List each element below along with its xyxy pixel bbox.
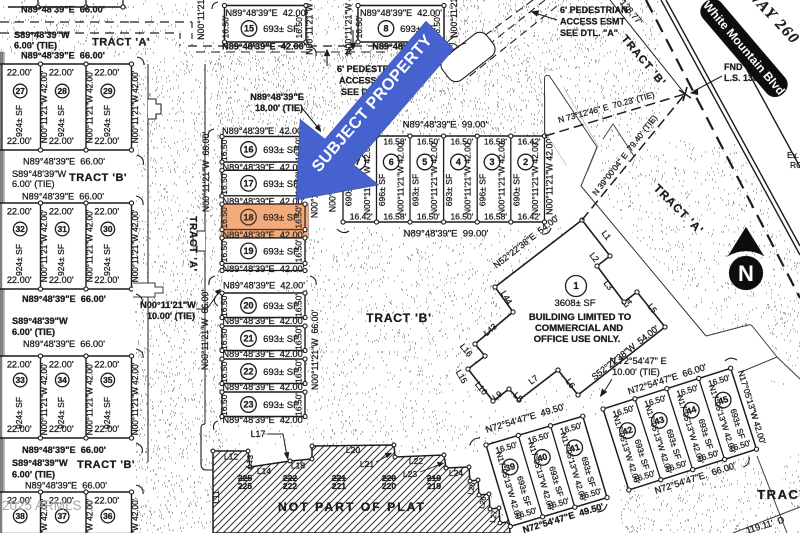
- svg-text:L23: L23: [403, 469, 417, 479]
- svg-text:22: 22: [243, 367, 253, 377]
- svg-text:18.00' (TIE): 18.00' (TIE): [255, 103, 303, 113]
- svg-text:32: 32: [15, 224, 25, 234]
- svg-text:N00°11'21"W 42.00': N00°11'21"W 42.00': [86, 362, 95, 435]
- svg-text:27: 27: [15, 86, 25, 96]
- svg-text:22.00': 22.00': [94, 496, 119, 506]
- svg-text:16.50': 16.50': [294, 15, 304, 38]
- svg-text:31: 31: [57, 224, 67, 234]
- svg-text:L11: L11: [211, 490, 221, 504]
- svg-text:22.00': 22.00': [49, 207, 74, 217]
- svg-text:22.00': 22.00': [49, 360, 74, 370]
- svg-text:N89°48'39"E 99.00': N89°48'39"E 99.00': [403, 120, 488, 131]
- svg-text:N89°48'39"E 66.00': N89°48'39"E 66.00': [22, 192, 104, 202]
- svg-text:16.50': 16.50': [294, 294, 304, 317]
- svg-text:924± SF: 924± SF: [102, 105, 112, 137]
- svg-text:N89°48'39"E 99.00': N89°48'39"E 99.00': [404, 229, 489, 240]
- svg-text:924± SF: 924± SF: [14, 244, 24, 276]
- svg-text:N00°11'21"W 42.00': N00°11'21"W 42.00': [40, 209, 49, 282]
- svg-text:N89°48'39"E 66.00': N89°48'39"E 66.00': [23, 339, 105, 349]
- svg-text:SEE DTL. "A": SEE DTL. "A": [560, 28, 618, 38]
- svg-text:N89°48'39"E 42.00': N89°48'39"E 42.00': [223, 264, 305, 274]
- svg-text:N00°11'21"W 66.00': N00°11'21"W 66.00': [310, 310, 320, 391]
- svg-text:22.00': 22.00': [7, 68, 32, 78]
- svg-text:20: 20: [243, 301, 253, 311]
- svg-text:S89°48'39"W: S89°48'39"W: [12, 458, 68, 468]
- svg-text:S89°48'39"W: S89°48'39"W: [12, 316, 68, 326]
- svg-text:N00°11'21"W 42.00': N00°11'21"W 42.00': [86, 70, 95, 143]
- svg-text:TRACT 'B': TRACT 'B': [77, 459, 135, 471]
- svg-text:N00°11'21"W 42.00': N00°11'21"W 42.00': [86, 209, 95, 282]
- svg-text:N00°11'21"W 42.00': N00°11'21"W 42.00': [131, 70, 140, 143]
- svg-text:N00°11'21"W: N00°11'21"W: [196, 0, 206, 40]
- svg-text:N00°11'21"W 42.00': N00°11'21"W 42.00': [131, 209, 140, 282]
- svg-text:16.50': 16.50': [219, 171, 229, 194]
- svg-text:924± SF: 924± SF: [102, 244, 112, 276]
- svg-text:N89°48'39"E 66.00': N89°48'39"E 66.00': [22, 294, 106, 304]
- svg-text:L18: L18: [291, 461, 305, 471]
- svg-text:16.50': 16.50': [354, 15, 364, 38]
- svg-text:RO: RO: [790, 160, 800, 170]
- svg-text:BUILDING LIMITED TO: BUILDING LIMITED TO: [529, 312, 631, 323]
- svg-text:16.50': 16.50': [219, 393, 229, 416]
- svg-text:16.50': 16.50': [221, 15, 231, 38]
- svg-text:222: 222: [283, 481, 297, 491]
- svg-text:690± SF: 690± SF: [511, 174, 521, 206]
- svg-text:16.50': 16.50': [219, 138, 229, 161]
- svg-text:N89°48'39"E 42.00': N89°48'39"E 42.00': [222, 126, 304, 136]
- svg-text:L21: L21: [360, 459, 374, 469]
- svg-text:N00°11'21"W: N00°11'21"W: [449, 0, 459, 38]
- svg-text:16.50': 16.50': [219, 239, 229, 262]
- svg-text:924± SF: 924± SF: [14, 105, 24, 137]
- svg-text:4: 4: [456, 157, 461, 167]
- svg-text:6.00' (TIE): 6.00' (TIE): [12, 470, 55, 480]
- svg-text:29: 29: [103, 86, 113, 96]
- svg-text:Ex.: Ex.: [787, 150, 799, 160]
- svg-text:N00°11'21"W 42.00': N00°11'21"W 42.00': [496, 141, 506, 215]
- svg-text:L20: L20: [346, 445, 360, 455]
- svg-text:10.00' (TIE): 10.00' (TIE): [147, 311, 195, 321]
- svg-text:TRACT 'A': TRACT 'A': [187, 216, 198, 272]
- svg-text:8: 8: [383, 24, 388, 34]
- svg-text:21: 21: [243, 334, 253, 344]
- svg-text:16.50': 16.50': [294, 239, 304, 262]
- svg-text:N00°11'21"W 42.00': N00°11'21"W 42.00': [545, 137, 555, 215]
- svg-text:TRACT 'B': TRACT 'B': [69, 172, 127, 184]
- svg-text:6.00' (TIE): 6.00' (TIE): [12, 327, 55, 337]
- svg-text:S89°48'39"W: S89°48'39"W: [14, 30, 70, 40]
- svg-text:L17: L17: [251, 429, 266, 439]
- svg-text:2: 2: [523, 157, 528, 167]
- svg-text:N00°11'21"W 42.00': N00°11'21"W 42.00': [463, 141, 473, 215]
- svg-text:693± SF: 693± SF: [411, 174, 421, 206]
- svg-text:L14: L14: [257, 466, 271, 476]
- svg-text:16: 16: [243, 145, 253, 155]
- svg-text:35: 35: [103, 375, 113, 385]
- svg-text:2025 ARMLS: 2025 ARMLS: [2, 498, 82, 513]
- svg-text:6: 6: [389, 157, 394, 167]
- svg-text:6.00' (TIE): 6.00' (TIE): [12, 179, 55, 189]
- svg-text:TRACT 'B': TRACT 'B': [366, 311, 432, 325]
- svg-text:OFFICE USE ONLY.: OFFICE USE ONLY.: [534, 334, 621, 345]
- svg-text:33: 33: [15, 375, 25, 385]
- svg-text:924± SF: 924± SF: [102, 397, 112, 429]
- svg-text:19: 19: [243, 246, 253, 256]
- svg-text:N00°11'21"W 42.00': N00°11'21"W 42.00': [396, 141, 406, 215]
- svg-text:N00°11'21"W 66.00': N00°11'21"W 66.00': [201, 132, 211, 213]
- svg-text:36: 36: [103, 511, 113, 521]
- svg-text:S89°48'39"W: S89°48'39"W: [12, 169, 66, 179]
- svg-text:28: 28: [57, 86, 67, 96]
- svg-text:TRACT: TRACT: [757, 487, 800, 502]
- svg-text:N89°48'39"E: N89°48'39"E: [250, 92, 304, 102]
- svg-text:924± SF: 924± SF: [14, 397, 24, 429]
- svg-text:22.00': 22.00': [94, 360, 119, 370]
- svg-text:N89°48'39"E 42.00': N89°48'39"E 42.00': [223, 415, 305, 425]
- svg-text:220: 220: [382, 481, 396, 491]
- svg-text:N00°11'21"W 42.00': N00°11'21"W 42.00': [40, 362, 49, 435]
- svg-text:N00°11'21"W 42.00': N00°11'21"W 42.00': [305, 0, 315, 55]
- svg-text:225: 225: [238, 481, 252, 491]
- svg-text:N89°48'39"E 42.00': N89°48'39"E 42.00': [360, 8, 442, 18]
- svg-text:696± SF: 696± SF: [478, 174, 488, 206]
- svg-text:N00°11'21"W 42.00': N00°11'21"W 42.00': [131, 362, 140, 435]
- svg-text:N89°48'39"E 42.00': N89°48'39"E 42.00': [223, 281, 305, 291]
- svg-text:N89°48'39"E 66.00': N89°48'39"E 66.00': [23, 157, 105, 167]
- svg-text:924± SF: 924± SF: [56, 105, 66, 137]
- svg-text:16.50': 16.50': [294, 205, 304, 228]
- svg-text:N89°48'39"E 42.00': N89°48'39"E 42.00': [222, 42, 306, 52]
- svg-text:N00°11'21"W: N00°11'21"W: [140, 300, 196, 310]
- svg-text:N00°11'21"W 42.00': N00°11'21"W 42.00': [86, 498, 95, 533]
- svg-text:N 72°54'47" E: N 72°54'47" E: [609, 356, 666, 366]
- svg-text:221: 221: [332, 481, 346, 491]
- svg-text:6.00' (TIE): 6.00' (TIE): [14, 41, 57, 51]
- svg-text:N89°48'39"E 66.00': N89°48'39"E 66.00': [21, 51, 105, 61]
- svg-text:ACCESS ESMT: ACCESS ESMT: [560, 17, 626, 27]
- svg-text:1: 1: [573, 281, 579, 292]
- svg-text:N89°48'39"E 66.00': N89°48'39"E 66.00': [22, 445, 106, 455]
- svg-text:3608± SF: 3608± SF: [554, 298, 595, 309]
- svg-text:TRACT 'A': TRACT 'A': [92, 37, 150, 49]
- svg-text:3: 3: [489, 157, 494, 167]
- svg-text:N89°48'39"E 42.00': N89°48'39"E 42.00': [223, 382, 305, 392]
- svg-text:N00°11'21"W 42.00': N00°11'21"W 42.00': [429, 141, 439, 215]
- svg-text:16.50': 16.50': [294, 393, 304, 416]
- svg-text:NOT PART OF PLAT: NOT PART OF PLAT: [278, 500, 426, 514]
- svg-text:15: 15: [244, 24, 254, 34]
- svg-text:22.00': 22.00': [49, 68, 74, 78]
- svg-text:16.50': 16.50': [219, 327, 229, 350]
- svg-text:22.00': 22.00': [94, 207, 119, 217]
- svg-text:693± SF: 693± SF: [444, 174, 454, 206]
- svg-text:N89°48'39"E 42.00': N89°48'39"E 42.00': [223, 316, 305, 326]
- svg-text:18: 18: [243, 212, 253, 222]
- svg-text:16.50': 16.50': [294, 360, 304, 383]
- svg-text:10.00' (TIE): 10.00' (TIE): [612, 367, 660, 377]
- svg-text:16.50': 16.50': [219, 294, 229, 317]
- svg-text:16.50': 16.50': [294, 327, 304, 350]
- svg-text:N00°11'21"W 42.00': N00°11'21"W 42.00': [530, 141, 540, 215]
- svg-text:30: 30: [103, 224, 113, 234]
- svg-text:COMMERCIAL AND: COMMERCIAL AND: [535, 323, 623, 334]
- svg-text:N00°11'21"W 42.00': N00°11'21"W 42.00': [40, 70, 49, 143]
- svg-text:N: N: [738, 261, 754, 286]
- svg-text:219: 219: [427, 481, 441, 491]
- svg-text:N89°48'39"E 42.00': N89°48'39"E 42.00': [223, 349, 305, 359]
- svg-text:L24: L24: [449, 468, 463, 478]
- svg-text:L22: L22: [409, 456, 423, 466]
- svg-text:924± SF: 924± SF: [56, 244, 66, 276]
- svg-text:N89°48'39"E 66.00': N89°48'39"E 66.00': [25, 481, 107, 491]
- svg-text:696± SF: 696± SF: [377, 174, 387, 206]
- svg-text:L12: L12: [224, 452, 238, 462]
- svg-text:N89°48'39"E 66.00': N89°48'39"E 66.00': [21, 5, 105, 15]
- svg-text:5: 5: [422, 157, 427, 167]
- svg-text:34: 34: [57, 375, 67, 385]
- svg-text:16.50': 16.50': [219, 360, 229, 383]
- svg-text:16.50': 16.50': [219, 205, 229, 228]
- svg-text:N00°11'21"W 66.00': N00°11'21"W 66.00': [200, 290, 210, 371]
- svg-text:17: 17: [243, 179, 253, 189]
- svg-text:22.00': 22.00': [94, 68, 119, 78]
- svg-text:23: 23: [243, 400, 253, 410]
- svg-text:22.00': 22.00': [7, 207, 32, 217]
- svg-text:924± SF: 924± SF: [56, 397, 66, 429]
- svg-text:22.00': 22.00': [7, 360, 32, 370]
- svg-text:N00°11'21"W 42.00': N00°11'21"W 42.00': [131, 498, 140, 533]
